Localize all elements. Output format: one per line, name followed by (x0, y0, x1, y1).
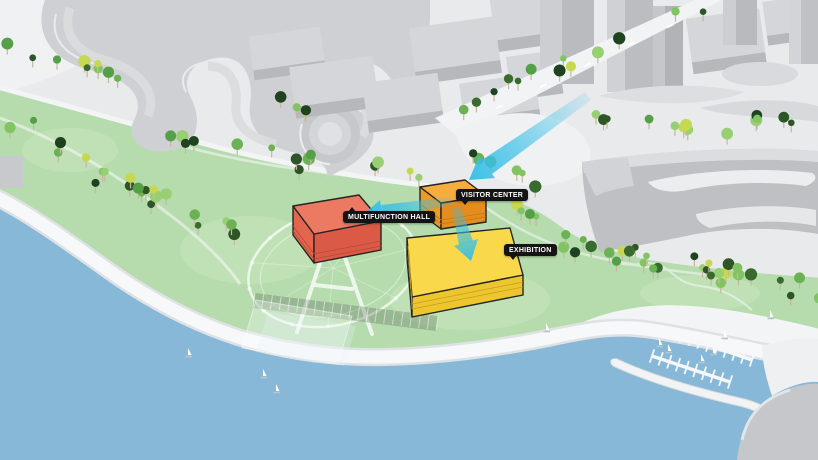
callout-tail (461, 200, 469, 205)
site-diagram: MULTIFUNCTION HALL VISITOR CENTER EXHIBI… (0, 0, 818, 460)
callout-multifunction-hall-text: MULTIFUNCTION HALL (348, 214, 430, 221)
callout-exhibition: EXHIBITION (504, 244, 557, 256)
callout-exhibition-text: EXHIBITION (509, 247, 552, 254)
multifunction-hall-building (293, 195, 381, 263)
callout-visitor-center-text: VISITOR CENTER (461, 192, 523, 199)
callout-multifunction-hall: MULTIFUNCTION HALL (343, 211, 435, 223)
small-building-left-edge (0, 156, 23, 188)
callout-tail (348, 207, 356, 212)
site-map (0, 0, 818, 460)
callout-tail (509, 255, 517, 260)
callout-visitor-center: VISITOR CENTER (456, 189, 528, 201)
